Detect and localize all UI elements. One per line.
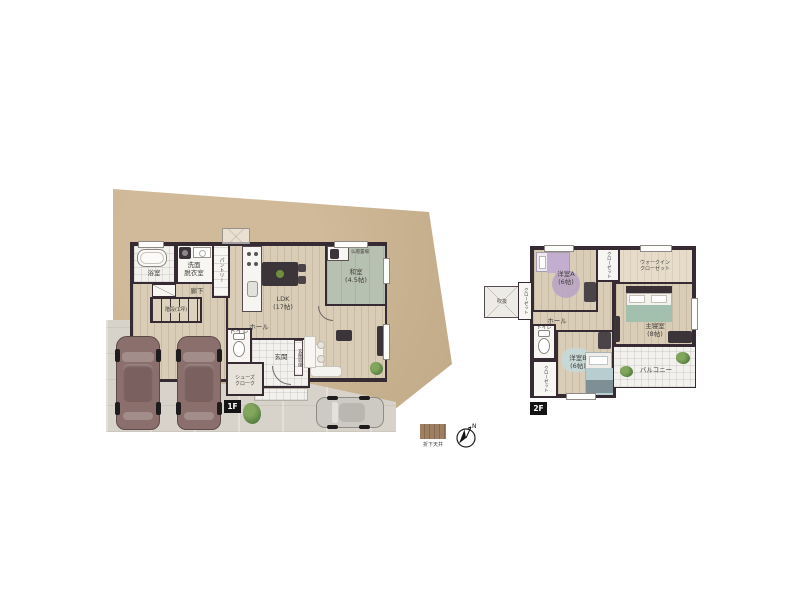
plant-icon (370, 362, 383, 375)
balcony-plant-icon (676, 352, 690, 364)
window (334, 241, 368, 248)
bathtub-icon (137, 249, 167, 267)
bed-icon-b (585, 352, 612, 394)
window (691, 298, 698, 330)
floor-badge-2f-text: 2F (533, 404, 543, 413)
balcony-plant-icon (620, 366, 633, 377)
desk-icon-b (598, 332, 611, 349)
room-wic (614, 248, 694, 284)
void-box (484, 286, 520, 318)
toilet-icon-1f (232, 333, 246, 359)
dining-chair-icon (298, 276, 306, 284)
stairs (150, 297, 202, 323)
car-icon (116, 336, 160, 430)
desk-icon-a (584, 282, 596, 302)
silver-car-icon (316, 397, 384, 428)
closet-left (518, 282, 532, 320)
car-icon (177, 336, 221, 430)
window (640, 245, 672, 252)
bed-icon-master (626, 286, 672, 322)
study-desk-icon (304, 336, 316, 368)
chair-icon (317, 341, 325, 349)
floor-badge-2f: 2F (530, 402, 547, 415)
compass-north-label: N (472, 423, 477, 430)
floor-badge-1f: 1F (224, 400, 241, 413)
rug-icon-a (552, 270, 580, 298)
legend-swatch (420, 424, 446, 439)
window (383, 324, 390, 360)
butsudan-icon (330, 249, 339, 259)
floor-badge-1f-text: 1F (227, 402, 237, 411)
chair-icon (317, 355, 325, 363)
bay-box (222, 228, 250, 245)
stove-icon (247, 252, 258, 266)
tv-board-icon (336, 330, 352, 341)
window (138, 241, 164, 248)
tv-icon-2f (614, 316, 620, 342)
entrance-storage-cabinet (294, 340, 303, 376)
window (566, 393, 596, 400)
room-shoes-cloak (226, 362, 264, 396)
washer-icon (179, 247, 191, 259)
dining-chair-icon (298, 264, 306, 272)
sink-icon (193, 247, 211, 258)
kitchen-counter (242, 246, 262, 312)
bed-icon-a (536, 252, 570, 272)
garden-plant-icon (243, 403, 261, 424)
storage-box (152, 284, 176, 297)
compass-icon: N (452, 422, 480, 450)
room-pantry (212, 244, 230, 298)
toilet-icon-2f (537, 330, 551, 356)
butsudan-niche (327, 246, 349, 261)
window (544, 245, 574, 252)
legend-label: 折下天井 (423, 442, 443, 448)
dresser-icon (668, 331, 692, 343)
closet-bottom (532, 360, 558, 398)
dining-table-icon (262, 262, 298, 286)
closet-top (596, 248, 620, 282)
kitchen-sink-icon (247, 281, 258, 297)
window (383, 258, 390, 284)
floor-plan-canvas: LDK (17帖) 浴室 洗面 脱衣室 パントリー 階段(1坪) 廊下 仏壇置場… (0, 0, 800, 600)
